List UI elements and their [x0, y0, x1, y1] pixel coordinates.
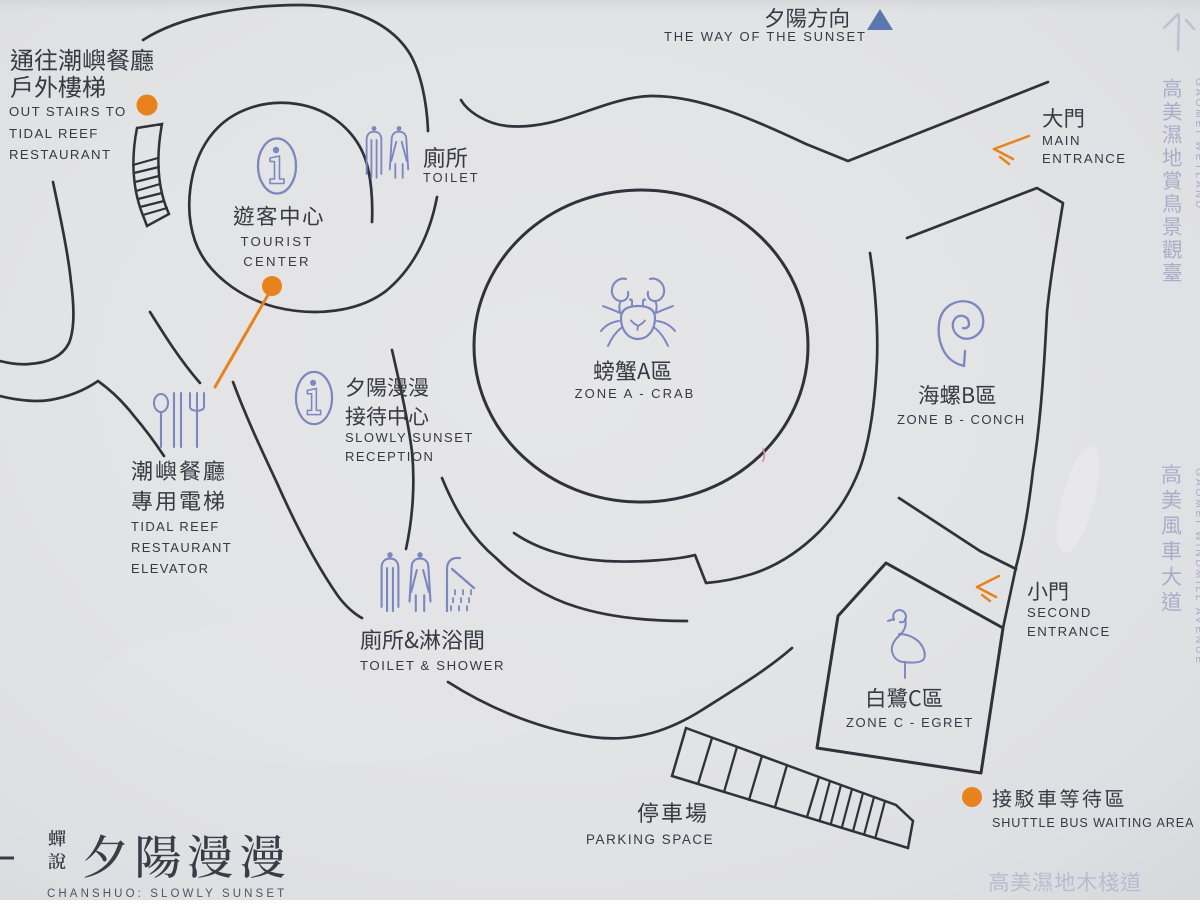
- svg-text:SLOWLY SUNSET: SLOWLY SUNSET: [345, 430, 474, 445]
- svg-text:TIDAL REEF: TIDAL REEF: [9, 126, 99, 141]
- svg-text:RESTAURANT: RESTAURANT: [9, 147, 111, 162]
- svg-text:MAIN: MAIN: [1042, 133, 1081, 148]
- svg-text:SECOND: SECOND: [1027, 605, 1092, 620]
- svg-text:RECEPTION: RECEPTION: [345, 449, 434, 464]
- svg-text:SHUTTLE BUS WAITING AREA: SHUTTLE BUS WAITING AREA: [992, 816, 1194, 830]
- svg-text:GAOMEI WETLAND: GAOMEI WETLAND: [1193, 78, 1200, 211]
- svg-text:GAOMEI WINDMILL AVENUE: GAOMEI WINDMILL AVENUE: [1193, 468, 1200, 666]
- svg-text:THE WAY OF THE SUNSET: THE WAY OF THE SUNSET: [664, 29, 867, 44]
- svg-text:TOURIST: TOURIST: [240, 234, 313, 249]
- svg-text:ENTRANCE: ENTRANCE: [1042, 151, 1127, 166]
- svg-text:TOILET: TOILET: [423, 170, 480, 185]
- svg-text:TOILET & SHOWER: TOILET & SHOWER: [360, 658, 505, 673]
- svg-text:RESTAURANT: RESTAURANT: [131, 540, 232, 555]
- svg-text:ZONE C - EGRET: ZONE C - EGRET: [846, 715, 974, 730]
- svg-text:PARKING SPACE: PARKING SPACE: [586, 832, 714, 847]
- svg-text:ENTRANCE: ENTRANCE: [1027, 624, 1111, 639]
- svg-text:CHANSHUO: SLOWLY SUNSET: CHANSHUO: SLOWLY SUNSET: [47, 888, 287, 900]
- svg-text:TIDAL REEF: TIDAL REEF: [131, 519, 220, 534]
- svg-text:ZONE B - CONCH: ZONE B - CONCH: [897, 412, 1026, 427]
- svg-text:ZONE A - CRAB: ZONE A - CRAB: [575, 386, 696, 401]
- svg-text:ELEVATOR: ELEVATOR: [131, 561, 209, 576]
- svg-text:OUT STAIRS TO: OUT STAIRS TO: [9, 104, 127, 119]
- svg-text:CENTER: CENTER: [243, 254, 310, 269]
